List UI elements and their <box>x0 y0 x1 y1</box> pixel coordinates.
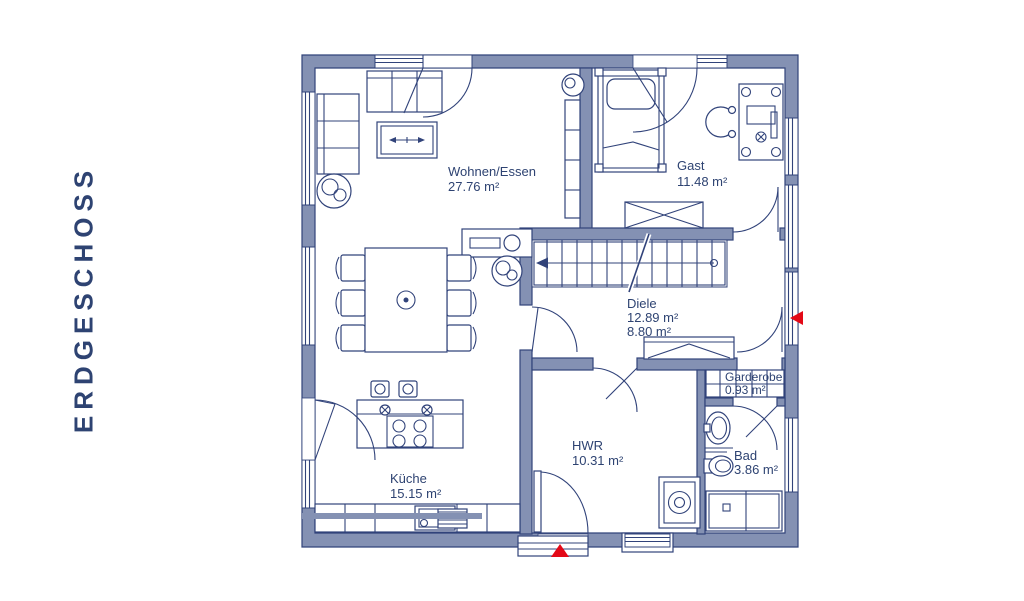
bed <box>595 68 666 172</box>
toilet <box>704 456 733 476</box>
floor-plan-page: ERDGESCHOSS <box>0 0 1024 601</box>
sofa <box>367 71 442 112</box>
washing-machine <box>659 477 700 528</box>
corner-sofa <box>317 94 359 174</box>
shelf-unit <box>565 100 580 218</box>
sideboard <box>644 337 734 359</box>
dining-table-set <box>336 248 476 352</box>
staircase <box>532 234 727 292</box>
room-area-hwr: 10.31 m² <box>572 453 624 468</box>
room-label-kueche: Küche <box>390 471 427 486</box>
kitchen-counter <box>302 504 520 532</box>
tv-lowboard <box>462 229 532 257</box>
bathroom-sink <box>704 412 733 452</box>
room-label-hwr: HWR <box>572 438 603 453</box>
room-area-bad: 3.86 m² <box>734 462 779 477</box>
room-area-diele: 12.89 m² <box>627 310 679 325</box>
shower <box>706 491 782 531</box>
desk <box>739 84 783 160</box>
plant-icon <box>492 256 522 286</box>
coffee-table <box>377 122 437 158</box>
room-label-garderobe: Garderobe <box>725 370 783 384</box>
entrance-step <box>518 536 588 556</box>
bar-stools <box>371 381 417 397</box>
room-area-wohnen: 27.76 m² <box>448 179 500 194</box>
plant-icon <box>317 174 351 208</box>
room-area-kueche: 15.15 m² <box>390 486 442 501</box>
room-label-bad: Bad <box>734 448 757 463</box>
plant-icon <box>562 74 584 96</box>
room-area-garderobe: 0.93 m² <box>725 383 766 397</box>
section-line-band <box>302 513 482 519</box>
room-area2-diele: 8.80 m² <box>627 324 672 339</box>
dresser <box>625 202 703 228</box>
room-label-wohnen: Wohnen/Essen <box>448 164 536 179</box>
floor-plan-drawing: Wohnen/Essen 27.76 m² Gast 11.48 m² Diel… <box>0 0 1024 601</box>
kitchen-island <box>357 400 463 448</box>
room-label-diele: Diele <box>627 296 657 311</box>
room-area-gast: 11.48 m² <box>677 174 728 189</box>
room-label-gast: Gast <box>677 158 705 173</box>
desk-chair <box>706 107 736 138</box>
